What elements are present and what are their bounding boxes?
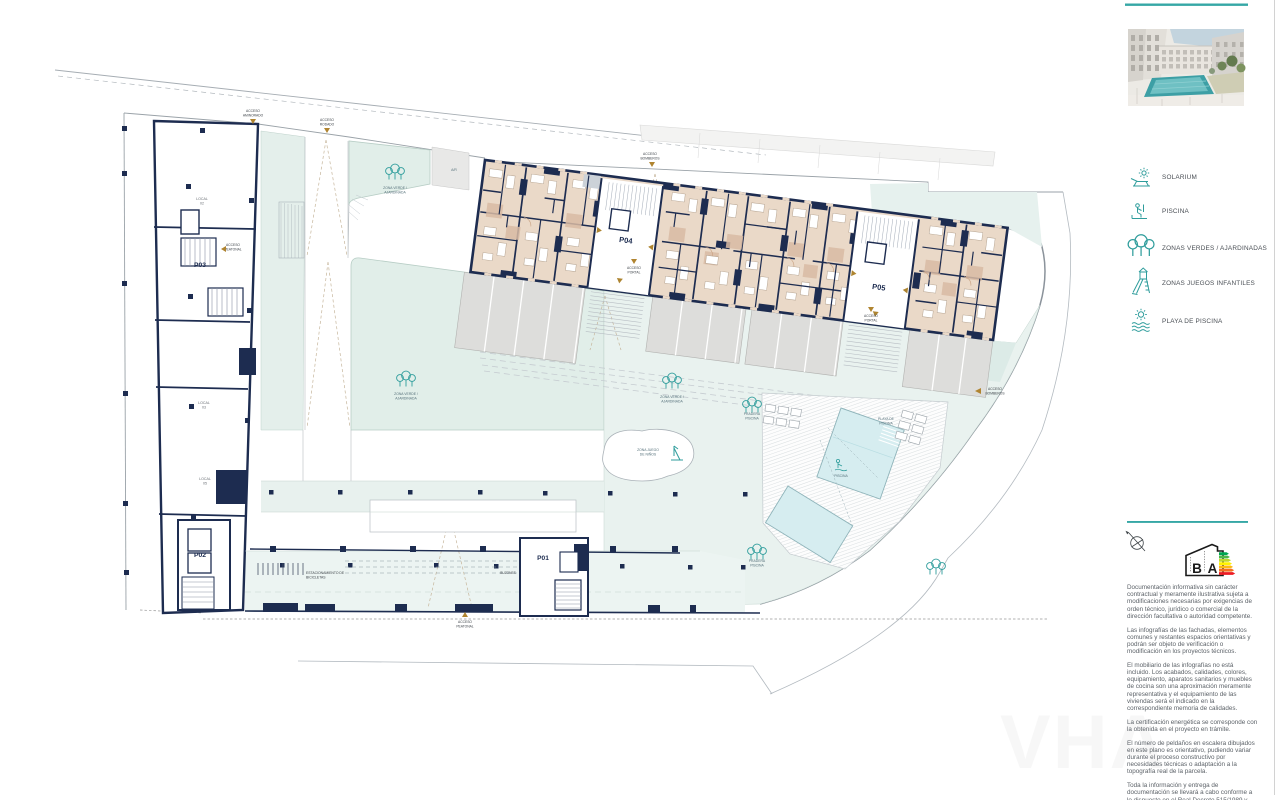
svg-text:ACCESO: ACCESO <box>864 314 878 318</box>
svg-text:PLAYA DE: PLAYA DE <box>878 417 895 421</box>
svg-text:PISCINA: PISCINA <box>834 474 848 478</box>
svg-text:AMINORADO: AMINORADO <box>243 113 264 117</box>
svg-text:P01: P01 <box>537 555 549 562</box>
svg-text:PRADERA: PRADERA <box>749 559 766 563</box>
svg-text:BOMBEROS: BOMBEROS <box>640 156 660 160</box>
svg-text:PISCINA: PISCINA <box>879 422 893 426</box>
svg-text:PISCINA: PISCINA <box>750 564 764 568</box>
svg-text:A: A <box>1208 561 1218 576</box>
svg-text:A/R: A/R <box>451 168 457 172</box>
svg-text:ACCESO: ACCESO <box>458 620 472 624</box>
svg-text:PEATONAL: PEATONAL <box>456 624 473 628</box>
svg-text:ZONA JUEGO: ZONA JUEGO <box>637 448 659 452</box>
svg-text:ZONA VERDE /: ZONA VERDE / <box>383 186 407 190</box>
svg-text:ACCESO: ACCESO <box>988 387 1002 391</box>
svg-text:ACCESO: ACCESO <box>246 109 260 113</box>
svg-text:PISCINA: PISCINA <box>745 417 759 421</box>
svg-text:05: 05 <box>203 482 207 486</box>
svg-text:PORTAL: PORTAL <box>628 270 641 274</box>
svg-text:LOCAL: LOCAL <box>196 197 208 201</box>
svg-text:ESTACIONAMIENTO DE: ESTACIONAMIENTO DE <box>306 571 345 575</box>
svg-text:PORTAL: PORTAL <box>865 318 878 322</box>
svg-text:B: B <box>1192 561 1202 576</box>
svg-text:BOMBEROS: BOMBEROS <box>985 391 1005 395</box>
svg-text:P05: P05 <box>872 282 886 293</box>
svg-text:ACCESO: ACCESO <box>320 118 334 122</box>
svg-text:03: 03 <box>202 406 206 410</box>
svg-text:02: 02 <box>200 202 204 206</box>
svg-text:LOCAL: LOCAL <box>199 477 211 481</box>
svg-text:DE NIÑOS: DE NIÑOS <box>640 452 657 457</box>
svg-text:P04: P04 <box>619 235 634 246</box>
svg-text:BUZONES: BUZONES <box>500 571 515 575</box>
svg-text:LOCAL: LOCAL <box>198 401 210 405</box>
svg-text:ZONA VERDE /: ZONA VERDE / <box>660 395 684 399</box>
svg-text:AJARDINADA: AJARDINADA <box>384 191 406 195</box>
svg-text:ACCESO: ACCESO <box>226 243 240 247</box>
svg-text:ZONA VERDE /: ZONA VERDE / <box>394 392 418 396</box>
svg-text:ACCESO: ACCESO <box>643 152 657 156</box>
svg-text:P02: P02 <box>194 552 206 559</box>
svg-text:AJARDINADA: AJARDINADA <box>661 400 683 404</box>
svg-text:ACCESO: ACCESO <box>627 266 641 270</box>
svg-text:BICICLETAS: BICICLETAS <box>306 575 326 579</box>
svg-text:PRADERA: PRADERA <box>744 412 761 416</box>
svg-text:P03: P03 <box>194 262 206 269</box>
svg-text:RODADO: RODADO <box>320 122 335 126</box>
svg-text:AJARDINADA: AJARDINADA <box>395 397 417 401</box>
svg-text:PEATONAL: PEATONAL <box>224 247 241 251</box>
